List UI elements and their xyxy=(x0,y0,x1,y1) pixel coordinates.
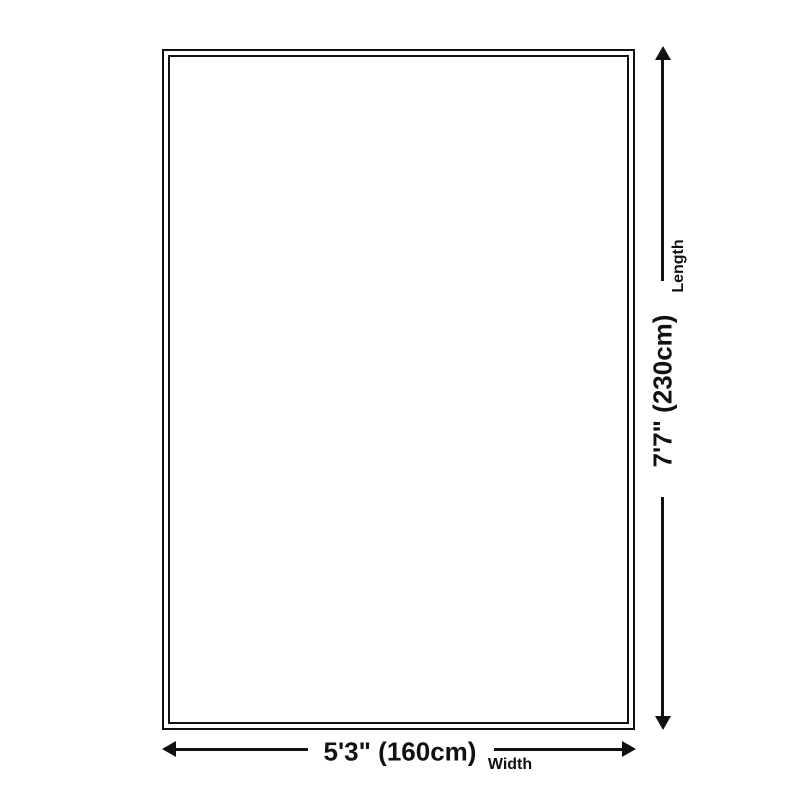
width-label: Width xyxy=(488,756,532,774)
length-label: Length xyxy=(670,239,688,292)
width-arrow-right-line xyxy=(494,748,622,751)
width-value: 5'3" (160cm) xyxy=(324,737,477,768)
arrow-right-icon xyxy=(622,741,636,757)
rug-inner-border xyxy=(168,55,629,724)
length-value: 7'7" (230cm) xyxy=(648,315,679,468)
rug-rectangle xyxy=(162,49,635,730)
size-diagram: Length 7'7" (230cm) 5'3" (160cm) Width xyxy=(0,0,800,800)
length-arrow-top-line xyxy=(661,58,664,281)
length-arrow-bottom-line xyxy=(661,497,664,717)
arrow-left-icon xyxy=(162,741,176,757)
width-arrow-left-line xyxy=(176,748,308,751)
arrow-down-icon xyxy=(655,716,671,730)
